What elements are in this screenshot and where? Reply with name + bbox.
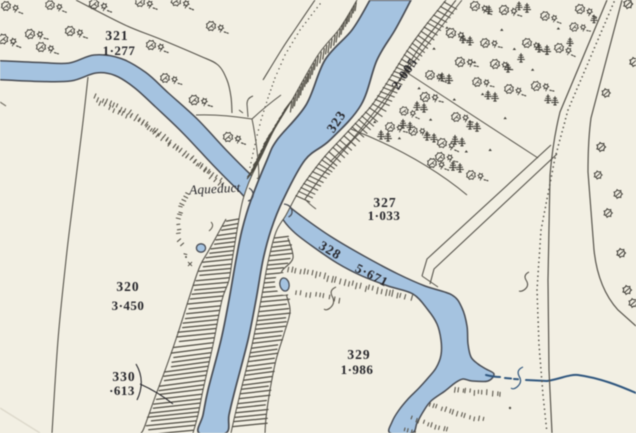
svg-text:1·986: 1·986 <box>341 362 374 377</box>
svg-text:329: 329 <box>347 347 370 362</box>
svg-text:·613: ·613 <box>109 383 135 398</box>
svg-text:3·450: 3·450 <box>112 298 145 313</box>
svg-text:1·277: 1·277 <box>103 43 136 58</box>
svg-text:1·033: 1·033 <box>368 208 401 223</box>
svg-text:330: 330 <box>112 369 135 384</box>
svg-text:321: 321 <box>105 28 128 43</box>
svg-text:Aqueduct: Aqueduct <box>188 180 241 198</box>
svg-text:320: 320 <box>116 279 139 294</box>
